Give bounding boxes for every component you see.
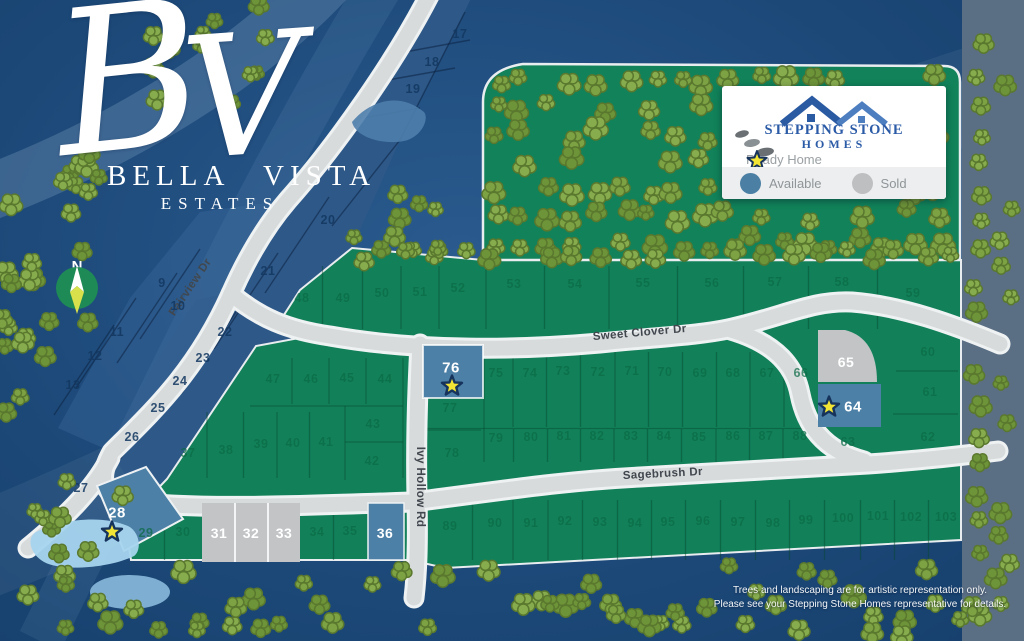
tree-icon [965, 280, 983, 296]
lot-label-19: 19 [406, 82, 421, 96]
lot-label-79: 79 [489, 431, 504, 445]
lot-label-55: 55 [636, 276, 651, 290]
lot-label-93: 93 [593, 515, 608, 529]
tree-icon [171, 561, 196, 584]
tree-icon [364, 577, 381, 592]
tree-icon [428, 202, 443, 216]
legend-ready-home-row: Ready Home [746, 150, 822, 168]
lot-label-46: 46 [304, 372, 319, 386]
lot-label-82: 82 [590, 429, 605, 443]
tree-icon [861, 623, 883, 641]
tree-icon [143, 58, 164, 78]
lot-label-13: 13 [66, 378, 81, 392]
lot-label-95: 95 [661, 515, 676, 529]
lot-label-58: 58 [835, 275, 850, 289]
lot-label-49: 49 [336, 291, 351, 305]
lot-label-24: 24 [173, 374, 188, 388]
lot-label-45: 45 [340, 371, 355, 385]
lot-label-44: 44 [378, 372, 393, 386]
lot-label-23: 23 [196, 351, 211, 365]
lot-label-102: 102 [900, 510, 922, 524]
lot-label-91: 91 [524, 516, 539, 530]
lot-label-88: 88 [793, 429, 808, 443]
lot-label-50: 50 [375, 286, 390, 300]
tree-icon [541, 596, 559, 613]
lot-label-70: 70 [658, 365, 673, 379]
lot-label-39: 39 [254, 437, 269, 451]
tree-icon [90, 170, 107, 185]
lot-label-10: 10 [171, 299, 186, 313]
tree-icon [972, 187, 992, 205]
lot-label-20: 20 [321, 213, 336, 227]
tree-icon [430, 240, 446, 255]
lot-label-62: 62 [921, 430, 936, 444]
tree-icon [916, 560, 938, 580]
lot-label-34: 34 [310, 525, 325, 539]
tree-icon [419, 619, 437, 635]
legend-available-label: Available [769, 176, 822, 191]
lot-label-30: 30 [176, 525, 191, 539]
lot-label-83: 83 [624, 429, 639, 443]
tree-icon [537, 95, 555, 111]
tree-icon [581, 574, 602, 593]
tree-icon [493, 76, 511, 93]
tree-icon [88, 593, 108, 611]
lot-label-52: 52 [451, 281, 466, 295]
lot-label-78: 78 [445, 446, 460, 460]
lot-label-25: 25 [151, 401, 166, 415]
tree-icon [79, 184, 97, 201]
lot-label-36: 36 [377, 525, 394, 541]
tree-icon [1003, 290, 1019, 305]
tree-icon [12, 332, 34, 353]
lot-label-61: 61 [923, 385, 938, 399]
tree-icon [322, 613, 344, 633]
tree-icon [990, 232, 1009, 249]
compass-rose-icon [53, 258, 101, 320]
tree-icon [992, 257, 1010, 274]
lot-label-76: 76 [442, 360, 460, 377]
tree-icon [788, 620, 810, 640]
tree-icon [942, 247, 958, 262]
lot-label-89: 89 [443, 519, 458, 533]
lot-label-40: 40 [286, 436, 301, 450]
tree-icon [753, 209, 770, 225]
tree-icon [0, 339, 13, 354]
lot-label-28: 28 [108, 505, 126, 522]
lot-label-26: 26 [125, 430, 140, 444]
site-map-page: Fairview DrSweet Clover DrSagebrush DrIv… [0, 0, 1024, 641]
tree-icon [257, 30, 275, 46]
lot-label-97: 97 [731, 515, 746, 529]
tree-icon [972, 546, 989, 561]
tree-icon [736, 616, 754, 633]
tree-icon [720, 558, 737, 574]
tree-icon [143, 27, 163, 46]
sold-dot-icon [852, 173, 873, 194]
disclaimer: Trees and landscaping are for artistic r… [694, 584, 1024, 612]
lot-label-53: 53 [507, 277, 522, 291]
lot-label-84: 84 [657, 429, 672, 443]
lot-label-41: 41 [319, 435, 334, 449]
lot-label-90: 90 [488, 516, 503, 530]
lot-label-9: 9 [158, 276, 165, 290]
tree-icon [891, 626, 913, 641]
tree-icon [189, 622, 206, 637]
tree-icon [159, 39, 180, 59]
tree-icon [477, 560, 500, 581]
east-boundary-band [962, 0, 1024, 641]
road-label-ivy-hollow-rd: Ivy Hollow Rd [414, 447, 426, 528]
lot-label-22: 22 [218, 325, 233, 339]
tree-icon [79, 144, 100, 164]
lot-label-54: 54 [568, 277, 583, 291]
lot-label-11: 11 [110, 325, 124, 339]
lot-label-48: 48 [295, 291, 310, 305]
lot-label-80: 80 [524, 430, 539, 444]
lot-label-31: 31 [211, 525, 228, 541]
lot-label-21: 21 [261, 264, 276, 278]
lot-label-75: 75 [489, 366, 504, 380]
lot-label-18: 18 [425, 55, 440, 69]
lot-label-29: 29 [139, 526, 154, 540]
tree-icon [98, 611, 123, 634]
tree-icon [389, 208, 411, 229]
tree-icon [698, 133, 717, 150]
tree-icon [512, 594, 535, 616]
lot-label-12: 12 [88, 349, 103, 363]
legend-sold-item: Sold [852, 173, 907, 194]
tree-icon [970, 512, 988, 528]
tree-icon [970, 154, 988, 170]
tree-icon [638, 205, 654, 220]
lot-label-74: 74 [523, 366, 538, 380]
tree-icon [638, 615, 661, 637]
lot-label-17: 17 [453, 27, 468, 41]
compass: N [53, 258, 101, 277]
lot-label-99: 99 [799, 513, 814, 527]
lot-label-63: 63 [841, 435, 856, 449]
lot-label-85: 85 [692, 430, 707, 444]
lot-label-68: 68 [726, 366, 741, 380]
tree-icon [124, 600, 144, 618]
tree-icon [57, 620, 73, 635]
legend-sold-label: Sold [881, 176, 907, 191]
lot-label-60: 60 [921, 345, 936, 359]
tree-icon [346, 230, 362, 245]
tree-icon [989, 527, 1008, 544]
lot-label-35: 35 [343, 524, 358, 538]
tree-icon [61, 204, 80, 222]
lot-label-101: 101 [867, 509, 889, 523]
tree-icon [606, 605, 625, 623]
lot-label-51: 51 [413, 285, 428, 299]
tree-icon [753, 67, 771, 83]
tree-icon [511, 240, 529, 256]
lot-label-32: 32 [243, 525, 260, 541]
tree-icon [971, 97, 990, 115]
tree-icon [206, 14, 222, 29]
tree-icon [573, 594, 591, 610]
lot-label-42: 42 [365, 454, 380, 468]
lot-label-87: 87 [759, 429, 774, 443]
lot-label-96: 96 [696, 514, 711, 528]
tree-icon [919, 248, 939, 266]
tree-icon [458, 243, 475, 259]
lot-label-64: 64 [844, 399, 862, 416]
tree-icon [1003, 201, 1020, 216]
lot-label-47: 47 [266, 372, 281, 386]
lot-label-57: 57 [768, 275, 783, 289]
tree-icon [150, 622, 168, 638]
lot-label-59: 59 [906, 286, 921, 300]
lot-label-43: 43 [366, 417, 381, 431]
lot-label-72: 72 [591, 365, 606, 379]
legend-card: STEPPING STONE HOMES Ready Home Availabl… [722, 86, 946, 199]
tree-icon [797, 563, 816, 580]
tree-icon [839, 242, 856, 257]
lot-label-100: 100 [832, 511, 854, 525]
tree-icon [58, 474, 75, 490]
lot-label-67: 67 [760, 366, 775, 380]
tree-icon [485, 127, 503, 143]
lot-label-103: 103 [935, 510, 957, 524]
tree-icon [649, 71, 666, 87]
tree-icon [701, 242, 719, 258]
tree-icon [397, 243, 415, 259]
tree-icon [225, 598, 247, 618]
disclaimer-line1: Trees and landscaping are for artistic r… [694, 584, 1024, 598]
lot-label-66: 66 [794, 366, 809, 380]
available-dot-icon [740, 173, 761, 194]
tree-icon [388, 185, 408, 203]
tree-icon [251, 619, 271, 637]
tree-icon [699, 179, 717, 196]
lot-label-86: 86 [726, 429, 741, 443]
lot-label-33: 33 [276, 525, 293, 541]
lot-label-92: 92 [558, 514, 573, 528]
lot-label-38: 38 [219, 443, 234, 457]
tree-icon [968, 69, 985, 85]
tree-icon [509, 69, 527, 85]
tree-icon [974, 130, 991, 145]
lot-label-65: 65 [838, 354, 855, 370]
lot-label-71: 71 [625, 364, 640, 378]
lot-label-94: 94 [628, 516, 643, 530]
tree-icon [952, 612, 969, 627]
tree-icon [57, 577, 74, 592]
tree-icon [973, 213, 990, 228]
tree-icon [309, 595, 330, 614]
tree-icon [295, 575, 312, 591]
tree-icon [431, 565, 456, 588]
lot-label-77: 77 [443, 401, 458, 415]
tree-icon [998, 415, 1016, 432]
lot-label-56: 56 [705, 276, 720, 290]
tree-icon [223, 617, 242, 635]
tree-icon [216, 93, 234, 109]
disclaimer-line2: Please see your Stepping Stone Homes rep… [694, 598, 1024, 612]
tree-icon [242, 67, 258, 82]
lot-label-73: 73 [556, 364, 571, 378]
lot-label-69: 69 [693, 366, 708, 380]
tree-icon [0, 403, 17, 422]
tree-icon [11, 389, 29, 405]
tree-icon [993, 376, 1008, 390]
lot-label-98: 98 [766, 516, 781, 530]
legend-available-item: Available [740, 173, 822, 194]
tree-icon [271, 616, 288, 632]
legend-status-strip: Available Sold [722, 167, 946, 199]
tree-icon [969, 429, 990, 448]
lot-label-37: 37 [181, 446, 196, 460]
tree-icon [35, 347, 57, 367]
lot-label-81: 81 [557, 429, 572, 443]
tree-icon [2, 274, 22, 292]
tree-icon [195, 27, 210, 41]
tree-icon [411, 196, 428, 212]
